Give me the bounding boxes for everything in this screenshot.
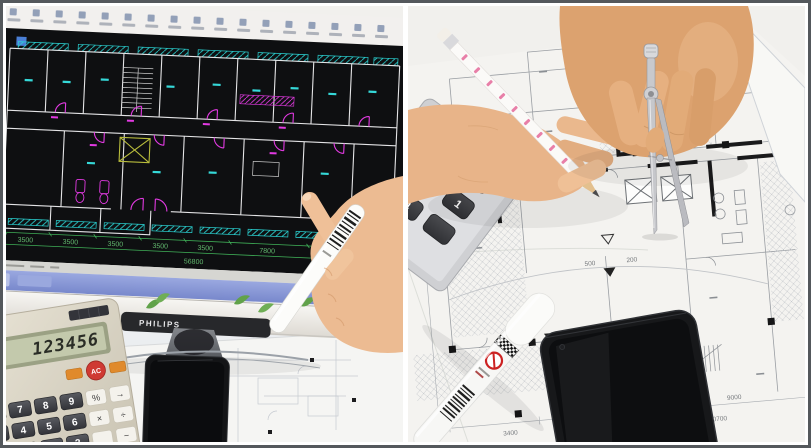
blueprint-drafting-photo: 500 200 3400 9000 30700 0 0 1 4 [408, 6, 805, 442]
compass-screw [657, 155, 664, 162]
dim-label: 3500 [197, 245, 213, 253]
compass-handle [644, 44, 658, 58]
photo-collage: 3500 3500 3500 3500 3500 7800 56800 [0, 0, 811, 448]
phone-camera [559, 344, 565, 350]
dim-label: 3500 [62, 239, 78, 247]
svg-text:→: → [115, 388, 125, 399]
function-key-orange [65, 368, 82, 380]
dim-label: 3500 [107, 241, 123, 249]
svg-text:9000: 9000 [727, 394, 742, 402]
dim-label: 3500 [17, 237, 33, 245]
svg-text:200: 200 [626, 256, 638, 264]
taskbar-start-button [6, 273, 10, 287]
dim-label-room: 7800 [259, 248, 275, 256]
function-key-orange [109, 361, 126, 373]
svg-text:%: % [91, 392, 100, 403]
cad-monitor-photo: 3500 3500 3500 3500 3500 7800 56800 [6, 6, 403, 442]
svg-text:500: 500 [584, 260, 596, 268]
smartphone [138, 354, 237, 442]
svg-text:3400: 3400 [503, 429, 518, 437]
taskbar-app-button [17, 275, 51, 288]
dim-label: 3500 [152, 243, 168, 251]
dim-label-total: 56800 [184, 258, 204, 266]
